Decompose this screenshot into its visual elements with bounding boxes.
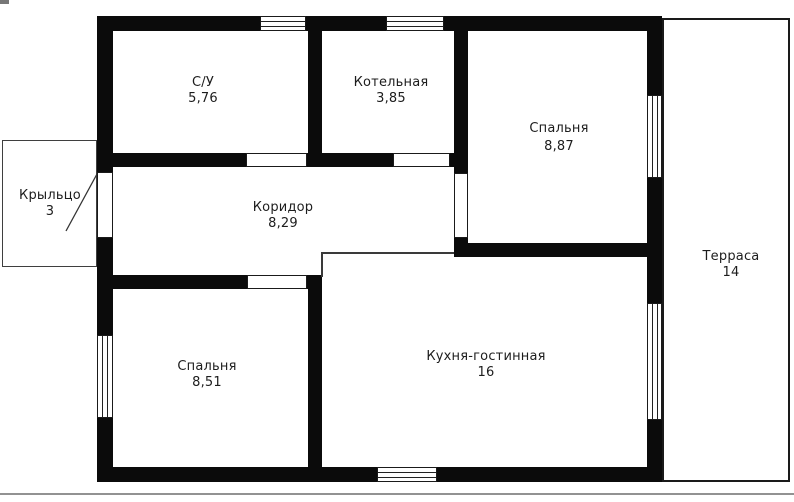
room-area: 14 [703, 265, 760, 281]
window-right-bedroom [647, 95, 662, 178]
window-left-bedroom [97, 335, 113, 418]
room-area: 8,29 [253, 216, 313, 232]
room-label-terrace: Терраса 14 [703, 249, 760, 281]
room-name: Кухня-гостинная [426, 349, 545, 365]
door-entrance [97, 172, 113, 238]
window-bottom-kitchen [377, 467, 437, 482]
window-top-boiler [386, 16, 444, 31]
page-divider-line [0, 493, 794, 495]
room-area: 8,51 [177, 375, 236, 391]
room-area: 16 [426, 365, 545, 381]
window-right-kitchen [647, 303, 662, 420]
door-bedroom-left [247, 275, 307, 289]
room-label-bathroom: С/У 5,76 [188, 75, 218, 107]
room-name: Коридор [253, 200, 313, 216]
window-top-bathroom [260, 16, 306, 31]
room-label-bedroom-right: Спальня 8,87 [529, 120, 588, 156]
wall-interior-bedroom-left-right [308, 275, 322, 467]
room-area: 3 [19, 204, 81, 220]
room-label-bedroom-left: Спальня 8,51 [177, 359, 236, 391]
open-boundary-vertical [321, 252, 323, 277]
room-name: С/У [188, 75, 218, 91]
wall-exterior-top [97, 16, 662, 31]
door-boiler-room [393, 153, 450, 167]
door-bathroom [246, 153, 307, 167]
room-area: 8,87 [529, 138, 588, 156]
room-area: 3,85 [354, 91, 429, 107]
room-label-boiler-room: Котельная 3,85 [354, 75, 429, 107]
room-label-corridor: Коридор 8,29 [253, 200, 313, 232]
room-name: Спальня [529, 120, 588, 138]
corner-artifact [0, 0, 9, 4]
floor-plan: С/У 5,76 Котельная 3,85 Спальня 8,87 Кор… [0, 0, 794, 502]
door-bedroom-right [454, 173, 468, 238]
open-boundary-horizontal [322, 252, 454, 254]
room-name: Терраса [703, 249, 760, 265]
room-name: Спальня [177, 359, 236, 375]
room-name: Крыльцо [19, 188, 81, 204]
room-label-kitchen-living: Кухня-гостинная 16 [426, 349, 545, 381]
room-area: 5,76 [188, 91, 218, 107]
wall-interior-bathroom-boiler [308, 31, 322, 167]
wall-interior-bedroom-right-bottom [454, 243, 647, 257]
room-label-porch: Крыльцо 3 [19, 188, 81, 220]
room-name: Котельная [354, 75, 429, 91]
